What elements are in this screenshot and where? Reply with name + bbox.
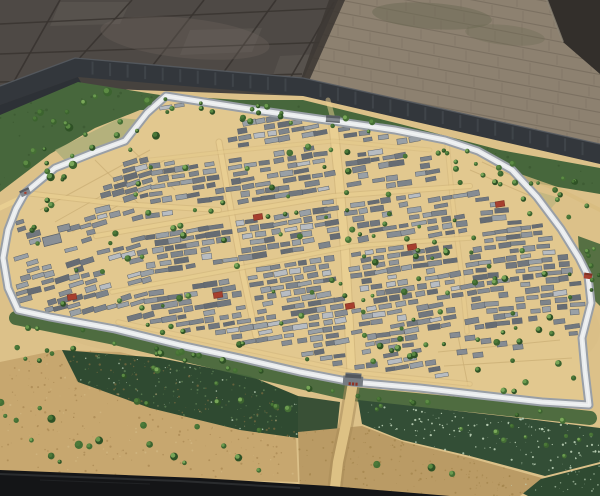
- south-gate: [343, 372, 364, 386]
- museum-city-model-photo: [0, 0, 600, 496]
- north-gate: [326, 115, 340, 123]
- red-roofed-building: [67, 294, 77, 301]
- red-roofed-building: [495, 201, 505, 208]
- photo-canvas: [0, 0, 600, 496]
- red-roofed-building: [253, 214, 263, 221]
- red-roofed-building: [345, 303, 355, 310]
- red-roofed-building: [213, 292, 223, 299]
- red-roofed-building: [407, 244, 417, 251]
